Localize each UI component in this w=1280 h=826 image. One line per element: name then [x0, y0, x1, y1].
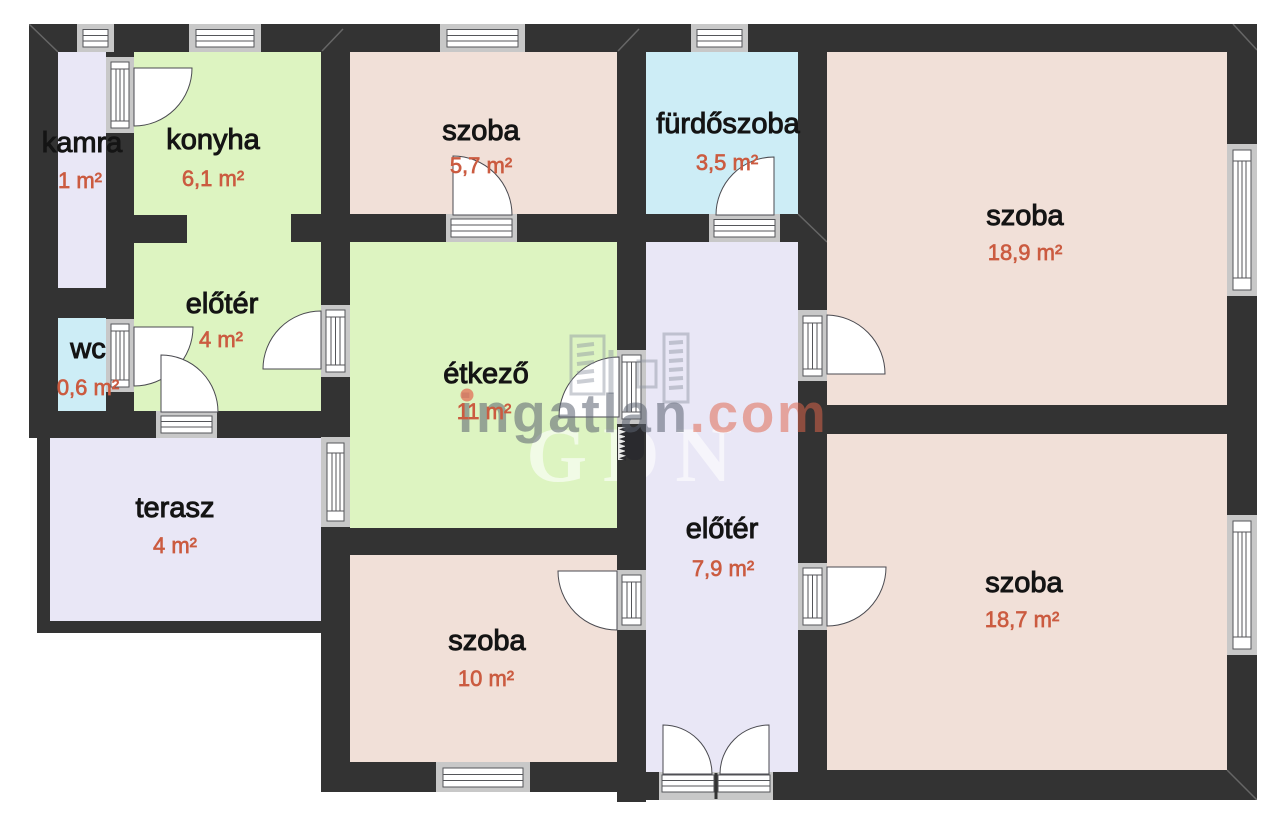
svg-text:18,7 m²: 18,7 m²: [985, 607, 1060, 632]
svg-text:étkező: étkező: [443, 358, 528, 390]
svg-text:előtér: előtér: [186, 288, 259, 320]
svg-text:4 m²: 4 m²: [199, 327, 243, 352]
svg-text:terasz: terasz: [136, 492, 215, 524]
svg-text:wc: wc: [69, 333, 105, 365]
svg-text:előtér: előtér: [686, 513, 759, 545]
svg-text:5,7 m²: 5,7 m²: [450, 153, 512, 178]
svg-text:4 m²: 4 m²: [153, 533, 197, 558]
svg-text:18,9 m²: 18,9 m²: [988, 240, 1063, 265]
svg-text:6,1 m²: 6,1 m²: [182, 166, 244, 191]
svg-text:ingatlan.com: ingatlan.com: [458, 382, 828, 444]
svg-text:szoba: szoba: [448, 625, 526, 657]
svg-text:3,5 m²: 3,5 m²: [696, 150, 758, 175]
svg-text:11 m²: 11 m²: [457, 399, 512, 424]
svg-text:kamra: kamra: [42, 127, 123, 159]
svg-text:konyha: konyha: [166, 124, 260, 156]
svg-text:7,9 m²: 7,9 m²: [692, 556, 754, 581]
svg-text:10 m²: 10 m²: [458, 666, 514, 691]
svg-text:szoba: szoba: [986, 200, 1064, 232]
svg-text:1 m²: 1 m²: [58, 168, 102, 193]
svg-text:fürdőszoba: fürdőszoba: [656, 108, 800, 140]
svg-text:0,6 m²: 0,6 m²: [57, 375, 119, 400]
svg-text:szoba: szoba: [985, 567, 1063, 599]
svg-text:szoba: szoba: [442, 115, 520, 147]
